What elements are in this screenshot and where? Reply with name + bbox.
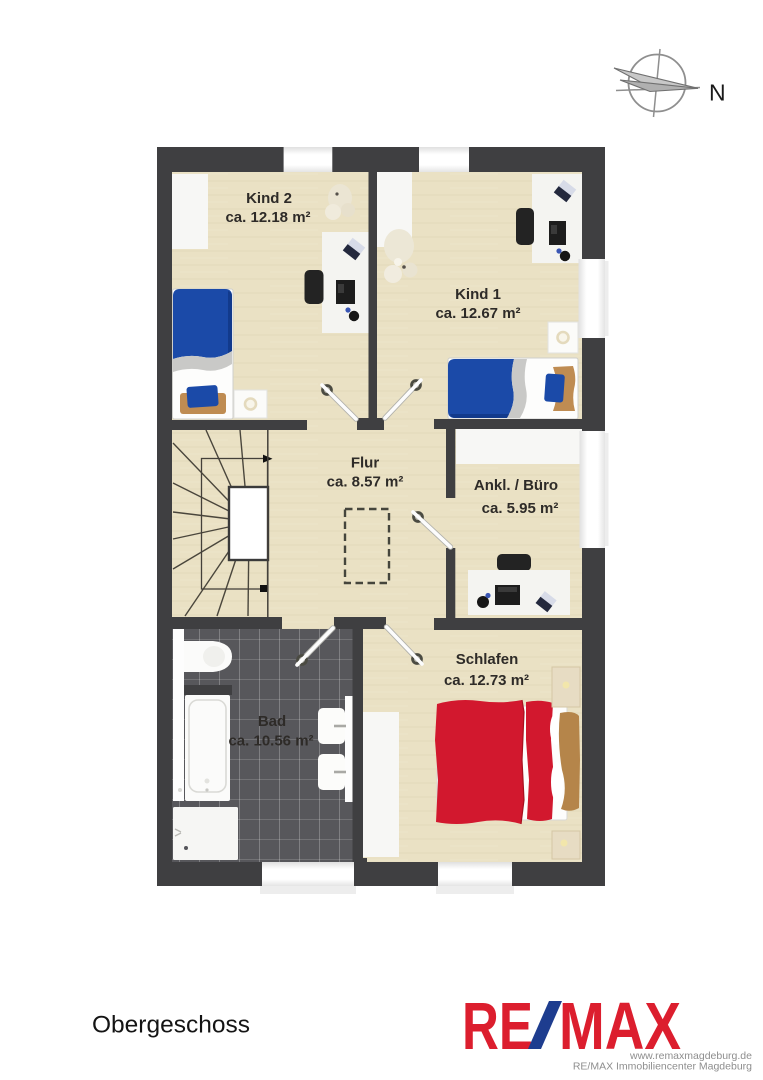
svg-text:ca. 12.67 m²: ca. 12.67 m² bbox=[435, 305, 520, 322]
svg-text:RE/MAX Immobiliencenter Magdeb: RE/MAX Immobiliencenter Magdeburg bbox=[573, 1061, 752, 1073]
svg-text:Obergeschoss: Obergeschoss bbox=[92, 1012, 250, 1039]
svg-text:N: N bbox=[709, 80, 726, 106]
svg-text:ca. 12.18 m²: ca. 12.18 m² bbox=[225, 209, 310, 226]
svg-text:Ankl. / Büro: Ankl. / Büro bbox=[474, 477, 558, 494]
svg-text:Kind 1: Kind 1 bbox=[455, 286, 501, 303]
svg-text:Schlafen: Schlafen bbox=[456, 651, 519, 668]
svg-text:ca. 5.95 m²: ca. 5.95 m² bbox=[482, 500, 559, 517]
svg-text:Flur: Flur bbox=[351, 455, 379, 472]
svg-text:RE: RE bbox=[462, 989, 533, 1064]
svg-text:ca. 12.73 m²: ca. 12.73 m² bbox=[444, 672, 529, 689]
svg-text:ca. 8.57 m²: ca. 8.57 m² bbox=[327, 474, 404, 491]
svg-text:Bad: Bad bbox=[258, 713, 286, 730]
svg-text:Kind 2: Kind 2 bbox=[246, 190, 292, 207]
svg-text:ca. 10.56 m²: ca. 10.56 m² bbox=[228, 733, 313, 750]
